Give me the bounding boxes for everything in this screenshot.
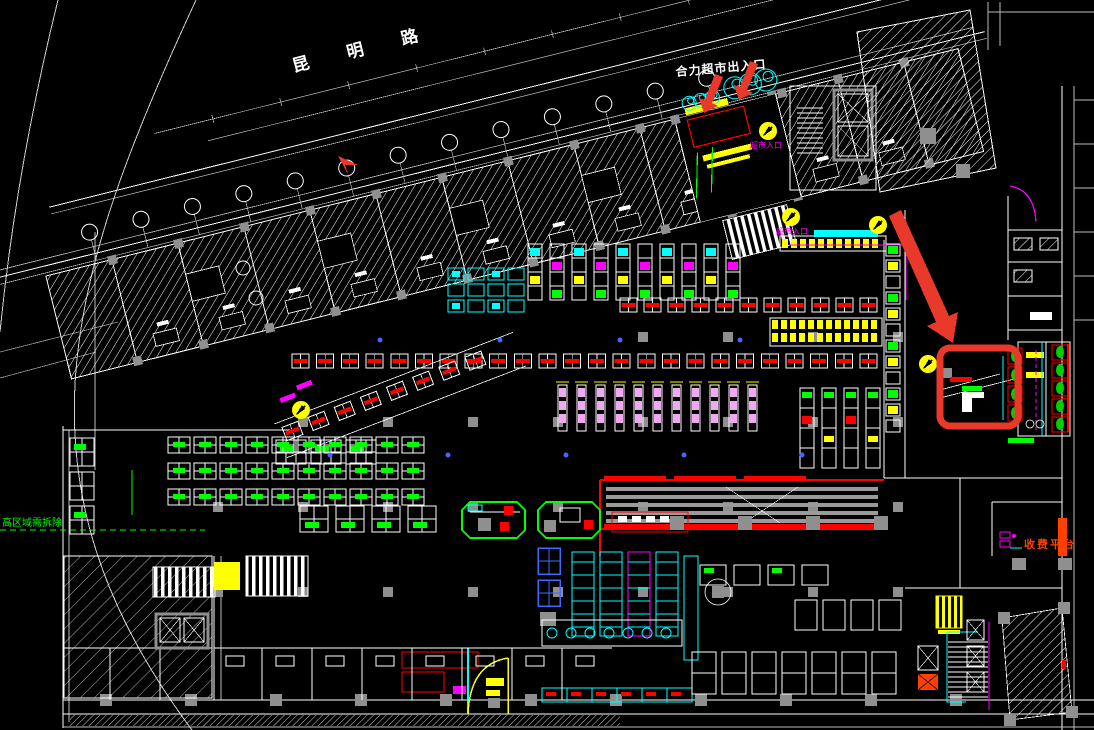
floor-plan-canvas: 昆明路合力超市出入口超市入口超市入口收费平台高区域需拆除 — [0, 0, 1094, 730]
toll-platform-zone — [992, 502, 1072, 570]
entrance-icon — [759, 122, 777, 140]
road-name-char-3: 路 — [399, 25, 421, 49]
stair-core-bottom-right — [918, 596, 1078, 726]
toll-platform-label: 收费平台 — [1024, 537, 1076, 551]
gondola-row-diagonal — [264, 306, 526, 457]
produce-island-2 — [538, 502, 600, 538]
stair-mid — [246, 556, 308, 596]
entrance-icon — [292, 401, 310, 419]
moving-walkway — [600, 476, 888, 556]
yellow-block — [214, 562, 240, 590]
storage-block-hatched — [857, 10, 996, 192]
cad-floorplan: 昆明路合力超市出入口超市入口超市入口收费平台高区域需拆除 — [0, 0, 1094, 730]
entrance-icon — [782, 208, 800, 226]
entrance-icon — [919, 355, 937, 373]
highlight-arrow — [889, 210, 958, 343]
stair-yellow — [936, 596, 962, 628]
road-name-char-2: 明 — [345, 40, 366, 63]
right-rooms — [1008, 186, 1062, 340]
gondola-row-upper — [620, 298, 877, 312]
gondola-row-main — [292, 354, 877, 368]
demolition-note-label: 高区域需拆除 — [2, 516, 62, 529]
kitchen-zone — [402, 648, 508, 714]
market-entrance-label-2: 超市入口 — [776, 226, 808, 236]
road-name-char-1: 昆 — [290, 53, 311, 76]
market-entrance-label-1: 超市入口 — [750, 140, 782, 150]
stair-left — [153, 567, 215, 597]
highlight-box-contents — [940, 356, 1018, 420]
entrance-icon — [869, 216, 887, 234]
